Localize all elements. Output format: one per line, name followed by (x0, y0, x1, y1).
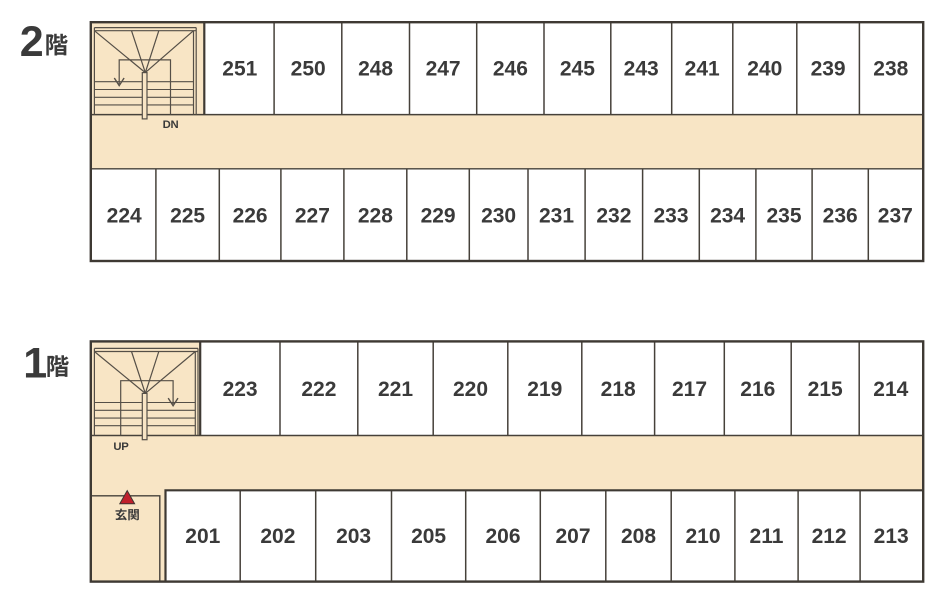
svg-text:224: 224 (107, 205, 142, 228)
svg-text:217: 217 (672, 378, 707, 401)
svg-text:215: 215 (808, 378, 843, 401)
svg-text:2: 2 (20, 18, 44, 66)
svg-text:234: 234 (710, 205, 745, 228)
svg-text:206: 206 (485, 525, 520, 548)
svg-text:202: 202 (260, 525, 295, 548)
svg-text:248: 248 (358, 57, 393, 80)
svg-text:208: 208 (621, 525, 656, 548)
svg-text:210: 210 (685, 525, 720, 548)
svg-text:233: 233 (653, 205, 688, 228)
svg-text:218: 218 (601, 378, 636, 401)
svg-text:223: 223 (223, 378, 258, 401)
svg-text:220: 220 (453, 378, 488, 401)
svg-text:236: 236 (823, 205, 858, 228)
svg-text:219: 219 (527, 378, 562, 401)
svg-text:231: 231 (539, 205, 574, 228)
svg-text:229: 229 (421, 205, 456, 228)
svg-text:246: 246 (493, 57, 528, 80)
svg-text:238: 238 (873, 57, 908, 80)
svg-text:216: 216 (740, 378, 775, 401)
svg-text:213: 213 (874, 525, 909, 548)
svg-text:232: 232 (596, 205, 631, 228)
svg-text:228: 228 (358, 205, 393, 228)
svg-text:UP: UP (113, 441, 129, 453)
svg-text:239: 239 (811, 57, 846, 80)
svg-text:245: 245 (560, 57, 595, 80)
svg-text:221: 221 (378, 378, 413, 401)
svg-text:DN: DN (163, 119, 179, 131)
svg-text:230: 230 (481, 205, 516, 228)
svg-text:205: 205 (411, 525, 446, 548)
svg-text:211: 211 (750, 525, 784, 548)
svg-text:240: 240 (747, 57, 782, 80)
svg-text:235: 235 (766, 205, 801, 228)
svg-text:207: 207 (555, 525, 590, 548)
svg-text:247: 247 (426, 57, 461, 80)
svg-text:214: 214 (873, 378, 908, 401)
svg-text:212: 212 (812, 525, 847, 548)
svg-text:201: 201 (185, 525, 220, 548)
svg-text:243: 243 (624, 57, 659, 80)
svg-text:203: 203 (336, 525, 371, 548)
svg-text:241: 241 (685, 57, 720, 80)
svg-text:250: 250 (291, 57, 326, 80)
svg-text:225: 225 (170, 205, 205, 228)
svg-text:226: 226 (233, 205, 268, 228)
svg-text:251: 251 (222, 57, 257, 80)
svg-text:1: 1 (23, 340, 47, 388)
svg-text:227: 227 (295, 205, 330, 228)
svg-text:222: 222 (301, 378, 336, 401)
svg-text:237: 237 (878, 205, 913, 228)
